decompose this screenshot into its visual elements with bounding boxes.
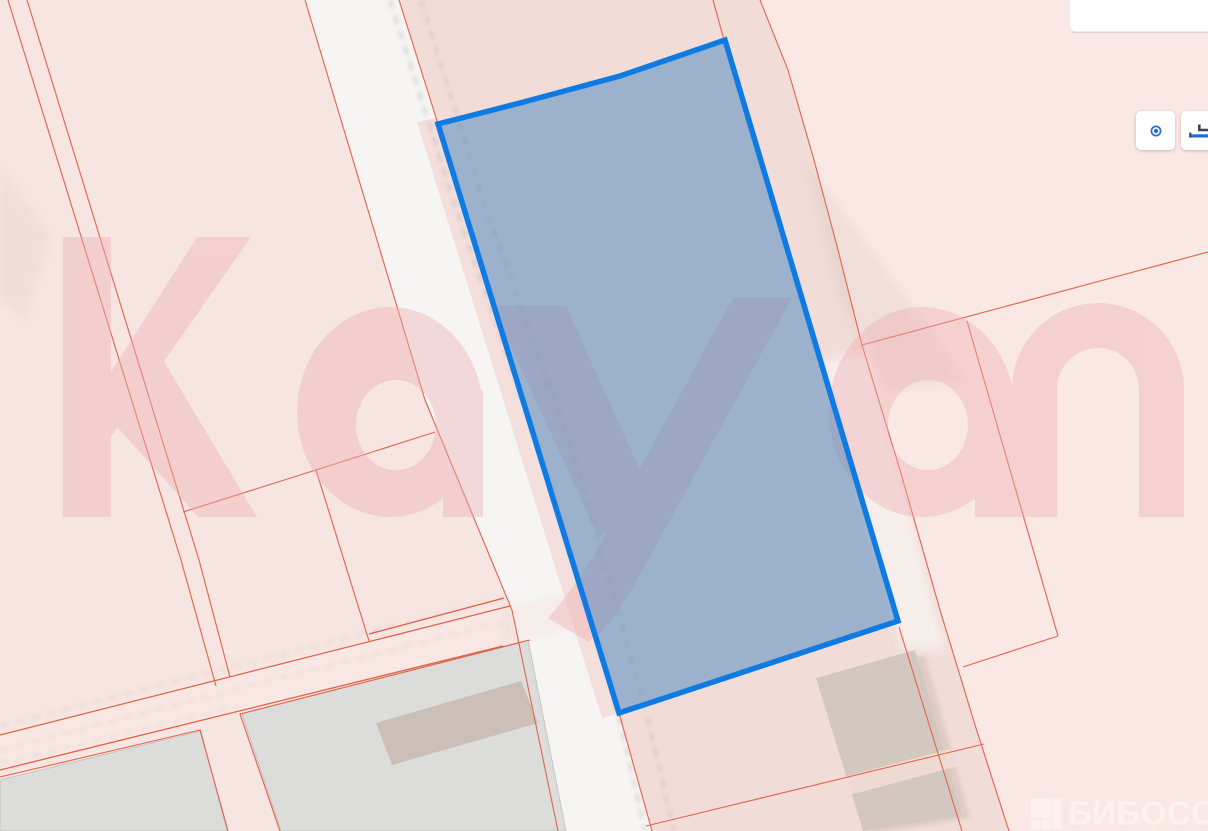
svg-text:БИБОСС: БИБОСС (1068, 795, 1208, 831)
